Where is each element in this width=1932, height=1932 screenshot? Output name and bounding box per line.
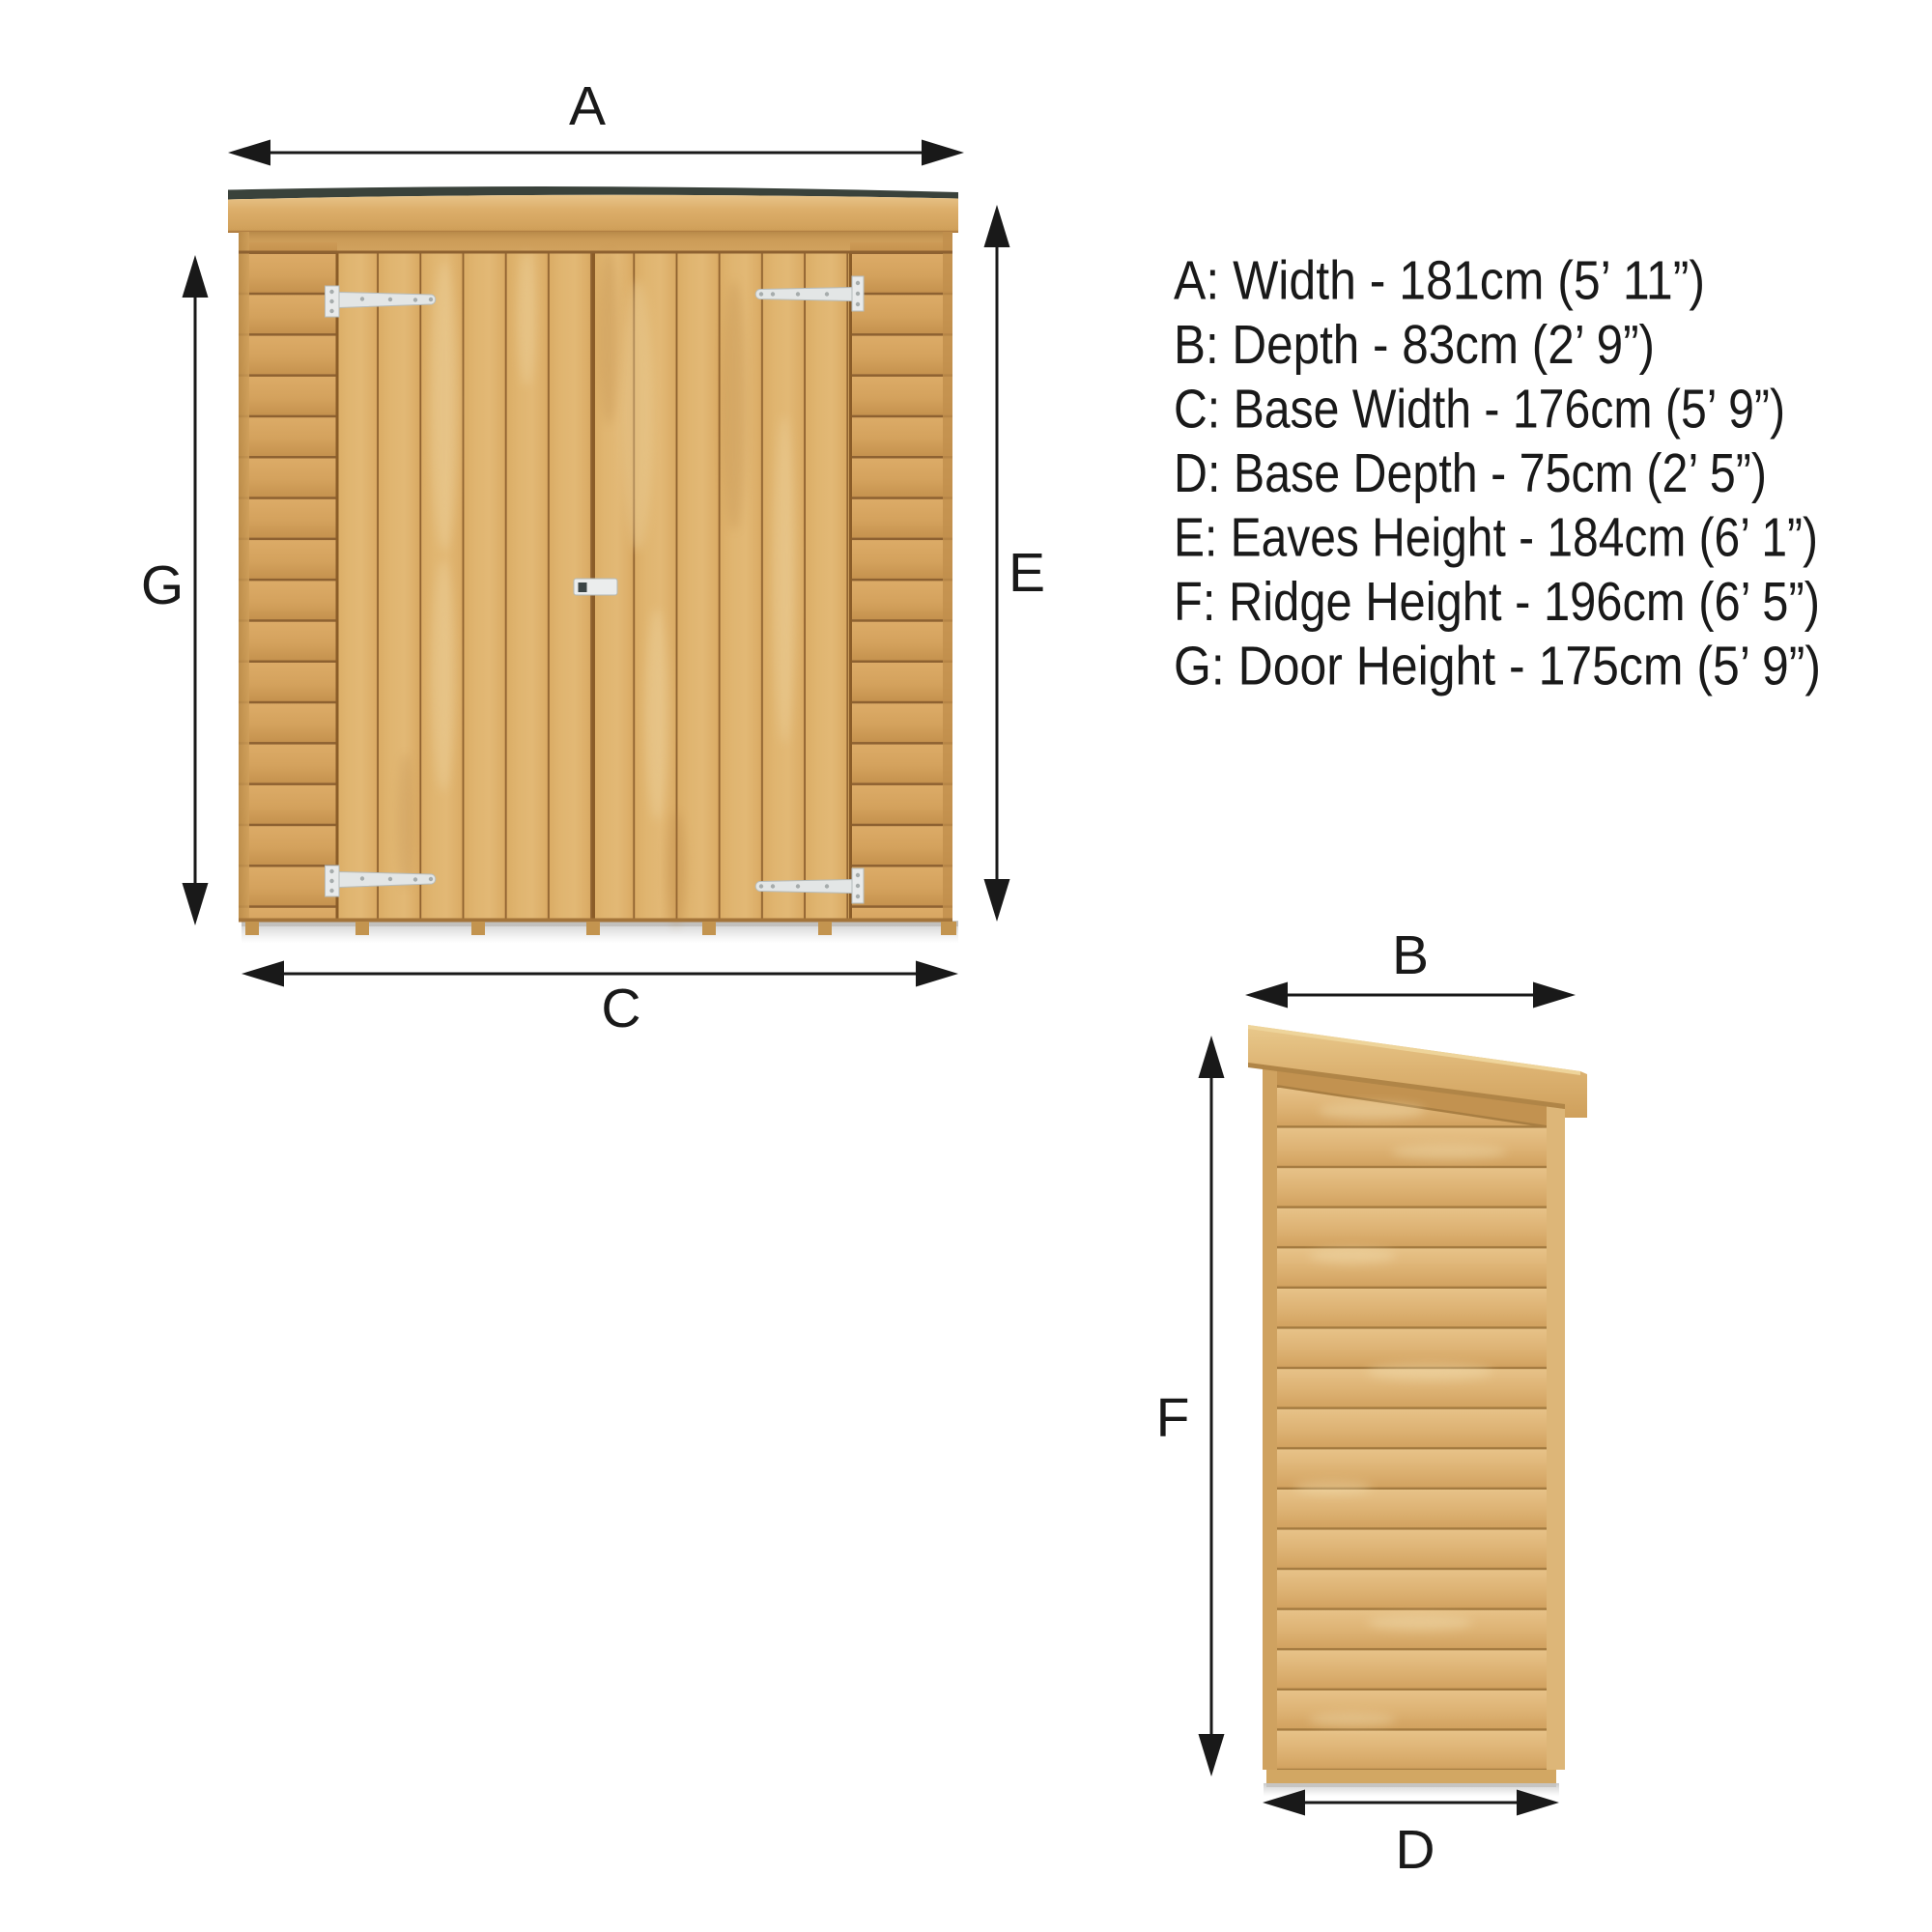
svg-text:B: Depth - 83cm (2’ 9”): B: Depth - 83cm (2’ 9”) (1174, 314, 1655, 376)
svg-text:E: Eaves Height - 184cm (6’ 1”: E: Eaves Height - 184cm (6’ 1”) (1174, 507, 1818, 569)
svg-text:F: F (1156, 1387, 1190, 1449)
svg-text:A: Width - 181cm (5’ 11”): A: Width - 181cm (5’ 11”) (1174, 250, 1705, 312)
svg-text:B: B (1392, 924, 1429, 986)
svg-text:D: Base Depth - 75cm (2’ 5”): D: Base Depth - 75cm (2’ 5”) (1174, 442, 1767, 504)
svg-text:G: Door Height - 175cm (5’ 9”): G: Door Height - 175cm (5’ 9”) (1174, 636, 1821, 697)
svg-text:C: C (601, 978, 640, 1039)
svg-text:C: Base Width - 176cm (5’ 9”): C: Base Width - 176cm (5’ 9”) (1174, 379, 1785, 440)
svg-text:D: D (1395, 1819, 1435, 1881)
svg-text:A: A (569, 75, 606, 137)
svg-text:F: Ridge Height - 196cm (6’ 5”: F: Ridge Height - 196cm (6’ 5”) (1174, 571, 1820, 633)
svg-text:E: E (1009, 542, 1045, 604)
svg-text:G: G (141, 554, 184, 616)
